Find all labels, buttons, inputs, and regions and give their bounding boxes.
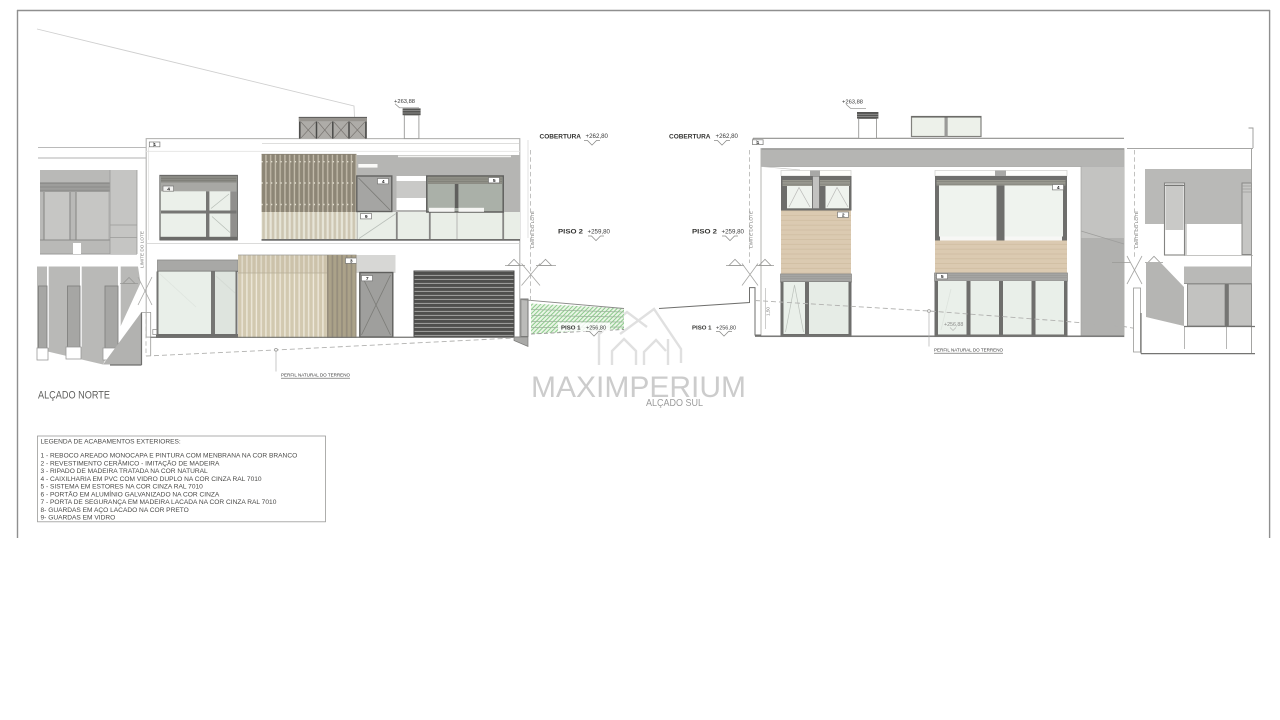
- svg-text:2: 2: [842, 213, 845, 219]
- svg-text:4 - CAIXILHARIA EM PVC COM VID: 4 - CAIXILHARIA EM PVC COM VIDRO DUPLO N…: [41, 476, 262, 483]
- svg-text:4: 4: [382, 179, 385, 185]
- svg-text:+262,80: +262,80: [586, 133, 609, 140]
- svg-text:PISO 1: PISO 1: [692, 326, 712, 332]
- svg-text:5 - SISTEMA EM ESTORES NA COR: 5 - SISTEMA EM ESTORES NA COR CINZA RAL …: [41, 484, 204, 491]
- svg-text:1,50: 1,50: [766, 307, 771, 316]
- svg-text:+259,80: +259,80: [722, 229, 745, 236]
- svg-text:+256,88: +256,88: [944, 322, 963, 328]
- svg-text:PERFIL NATURAL DO TERRENO: PERFIL NATURAL DO TERRENO: [281, 373, 350, 378]
- svg-text:3: 3: [350, 259, 353, 265]
- svg-text:+263,88: +263,88: [394, 99, 415, 105]
- svg-text:7: 7: [366, 276, 369, 282]
- svg-text:+259,80: +259,80: [588, 229, 611, 236]
- svg-text:+256,80: +256,80: [586, 326, 606, 332]
- svg-text:4: 4: [167, 186, 170, 192]
- svg-text:5: 5: [493, 178, 496, 184]
- svg-text:ALÇADO SUL: ALÇADO SUL: [646, 397, 703, 409]
- svg-text:+256,80: +256,80: [716, 326, 736, 332]
- svg-text:9: 9: [365, 214, 368, 220]
- svg-text:3 - RIPADO DE MADEIRA TRATADA: 3 - RIPADO DE MADEIRA TRATADA NA COR NAT…: [41, 468, 209, 475]
- svg-text:LIMITE DO LOTE: LIMITE DO LOTE: [749, 211, 754, 248]
- svg-text:COBERTURA: COBERTURA: [540, 134, 582, 141]
- svg-text:PISO 1: PISO 1: [561, 326, 581, 332]
- svg-text:PERFIL NATURAL DO TERRENO: PERFIL NATURAL DO TERRENO: [934, 348, 1003, 353]
- svg-text:9- GUARDAS EM VIDRO: 9- GUARDAS EM VIDRO: [41, 515, 116, 522]
- svg-text:8- GUARDAS EM AÇO LACADO NA CO: 8- GUARDAS EM AÇO LACADO NA COR PRETO: [41, 507, 189, 514]
- svg-text:6 - PORTÃO EM ALUMÍNIO GALVANI: 6 - PORTÃO EM ALUMÍNIO GALVANIZADO NA CO…: [41, 489, 220, 498]
- svg-text:PISO 2: PISO 2: [692, 229, 717, 236]
- svg-text:4: 4: [1057, 185, 1060, 191]
- svg-text:LEGENDA DE ACABAMENTOS EXTERIO: LEGENDA DE ACABAMENTOS EXTERIORES:: [41, 439, 181, 446]
- svg-text:MAXIMPERIUM: MAXIMPERIUM: [531, 371, 746, 404]
- svg-text:ALÇADO NORTE: ALÇADO NORTE: [38, 390, 110, 402]
- svg-text:1 - REBOCO AREADO MONOCAPA E P: 1 - REBOCO AREADO MONOCAPA E PINTURA COM…: [41, 453, 298, 460]
- svg-text:LIMITE DO LOTE: LIMITE DO LOTE: [1134, 211, 1139, 248]
- svg-text:1: 1: [153, 142, 156, 148]
- svg-text:1: 1: [757, 140, 760, 146]
- svg-text:2 - REVESTIMENTO CERÂMICO - I: 2 - REVESTIMENTO CERÂMICO - IMITAÇÃO DE …: [41, 458, 221, 467]
- svg-text:7 - PORTA DE SEGURANÇA EM MADE: 7 - PORTA DE SEGURANÇA EM MADEIRA LACADA…: [41, 499, 277, 506]
- svg-text:+263,88: +263,88: [842, 100, 863, 106]
- svg-text:5: 5: [941, 274, 944, 280]
- svg-text:LIMITE DO LOTE: LIMITE DO LOTE: [530, 211, 535, 248]
- svg-text:+262,80: +262,80: [716, 133, 739, 140]
- svg-text:PISO 2: PISO 2: [558, 229, 583, 236]
- svg-text:LIMITE DO LOTE: LIMITE DO LOTE: [140, 231, 145, 268]
- svg-text:COBERTURA: COBERTURA: [669, 134, 711, 141]
